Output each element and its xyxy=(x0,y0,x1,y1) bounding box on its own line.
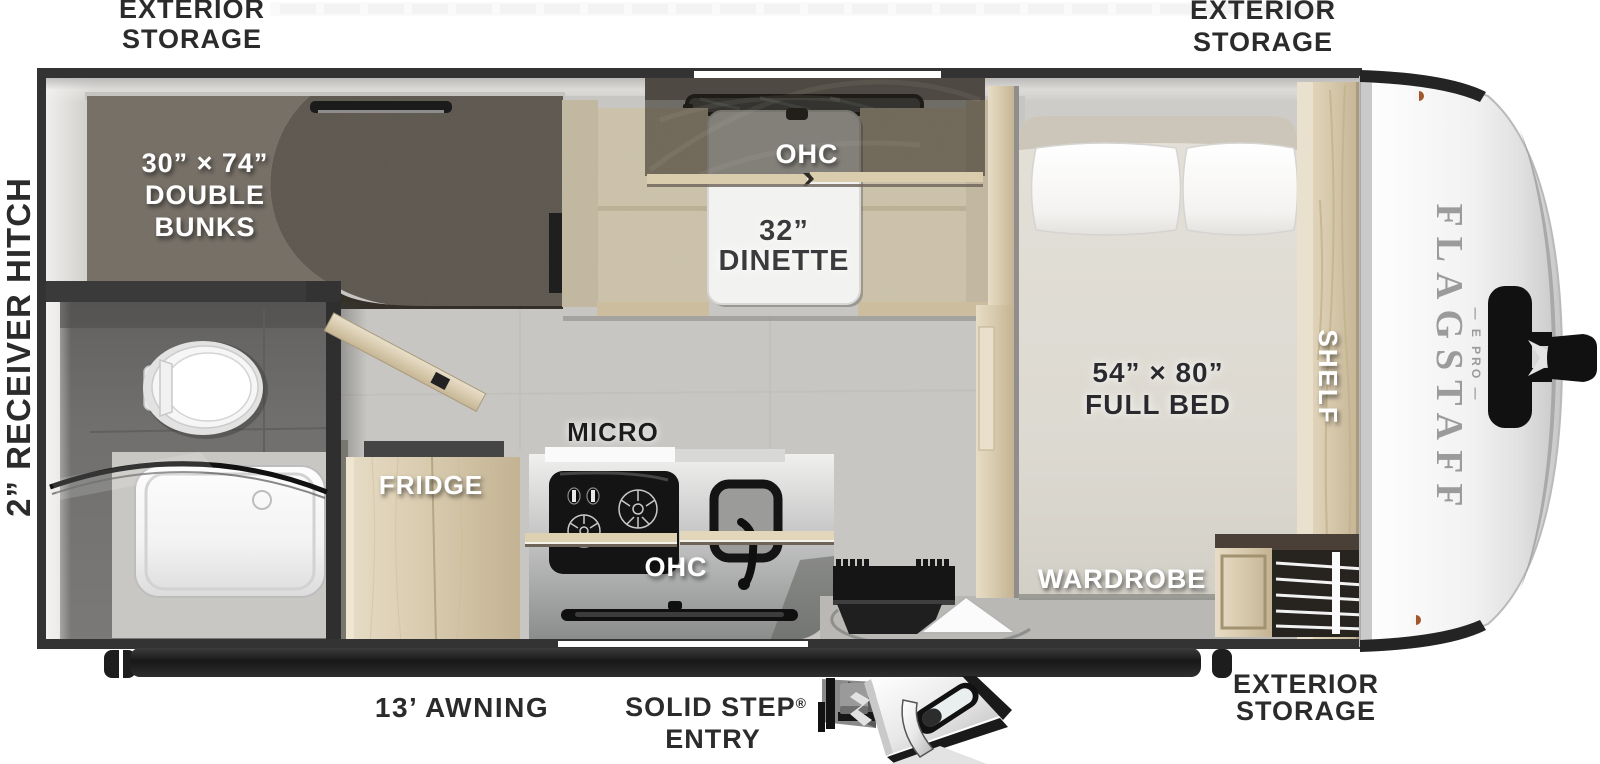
svg-text:ENTRY: ENTRY xyxy=(665,724,761,754)
svg-text:EXTERIOR: EXTERIOR xyxy=(1233,669,1379,699)
svg-text:SHELF: SHELF xyxy=(1313,329,1343,424)
svg-text:STORAGE: STORAGE xyxy=(122,24,262,54)
svg-text:DINETTE: DINETTE xyxy=(718,245,849,277)
svg-text:13’ AWNING: 13’ AWNING xyxy=(375,692,549,723)
svg-text:FULL BED: FULL BED xyxy=(1085,389,1231,420)
svg-text:BUNKS: BUNKS xyxy=(154,212,255,242)
svg-text:STORAGE: STORAGE xyxy=(1193,27,1333,57)
svg-text:2” RECEIVER HITCH: 2” RECEIVER HITCH xyxy=(0,177,37,517)
svg-text:FLAGSTAFF: FLAGSTAFF xyxy=(1428,203,1470,516)
svg-text:FRIDGE: FRIDGE xyxy=(379,470,483,500)
svg-text:EXTERIOR: EXTERIOR xyxy=(1190,0,1336,25)
svg-text:EXTERIOR: EXTERIOR xyxy=(119,0,265,24)
svg-text:30” × 74”: 30” × 74” xyxy=(142,148,269,178)
svg-text:OHC: OHC xyxy=(645,552,708,582)
svg-text:MICRO: MICRO xyxy=(567,417,659,447)
svg-text:54” × 80”: 54” × 80” xyxy=(1092,357,1223,388)
svg-text:— E PRO —: — E PRO — xyxy=(1469,307,1483,402)
svg-text:DOUBLE: DOUBLE xyxy=(145,180,265,210)
svg-text:SOLID STEP®: SOLID STEP® xyxy=(625,692,807,722)
svg-text:WARDROBE: WARDROBE xyxy=(1038,564,1207,594)
svg-text:OHC: OHC xyxy=(776,139,839,169)
svg-text:STORAGE: STORAGE xyxy=(1236,696,1376,726)
svg-text:32”: 32” xyxy=(759,215,809,247)
